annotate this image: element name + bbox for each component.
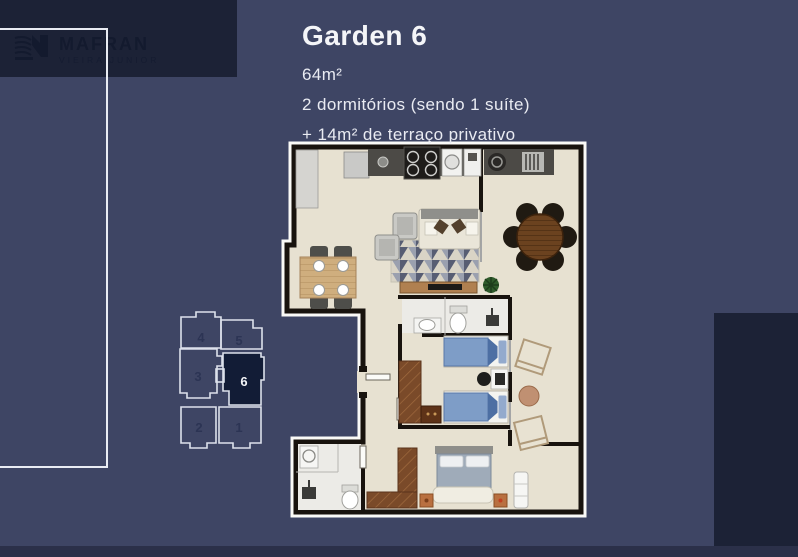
- keyplan-label-5: 5: [235, 333, 242, 348]
- laptop: [495, 373, 505, 385]
- tv: [428, 284, 462, 290]
- decorative-border: [0, 28, 108, 468]
- suite-sink: [300, 446, 318, 468]
- bedrooms-text: 2 dormitórios (sendo 1 suíte): [302, 95, 530, 115]
- jar: [378, 157, 388, 167]
- single-bed-2: [444, 391, 508, 423]
- tall-cabinet: [514, 472, 528, 508]
- page: MAFRAN VIEIRA JUNIOR Garden 6 64m² 2 dor…: [0, 0, 798, 557]
- keyplan-label-2: 2: [195, 420, 202, 435]
- suite-toilet: [342, 485, 358, 509]
- keyplan-label-6: 6: [240, 374, 247, 389]
- wardrobe: [399, 361, 421, 423]
- title-block: Garden 6 64m² 2 dormitórios (sendo 1 suí…: [302, 20, 530, 155]
- double-bed: [433, 446, 493, 503]
- washbasin: [419, 320, 435, 331]
- grill: [488, 153, 506, 171]
- bottom-right-dark-panel: [714, 313, 798, 557]
- bottom-strip: [0, 546, 798, 557]
- bed-bench: [433, 487, 493, 503]
- pouf: [519, 386, 539, 406]
- suite-wardrobe-foot: [367, 492, 417, 508]
- desk-chair: [477, 372, 491, 386]
- area-text: 64m²: [302, 65, 530, 85]
- kitchen-counter: [296, 150, 318, 208]
- suite-bathroom-door: [360, 446, 366, 468]
- keyplan-label-3: 3: [194, 369, 201, 384]
- keyplan: 4 5 3 6 2 1: [170, 300, 274, 458]
- single-bed-1: [444, 336, 508, 367]
- plant: [483, 277, 499, 293]
- keyplan-label-4: 4: [197, 330, 205, 345]
- toilet: [450, 306, 467, 333]
- tv-console: [400, 282, 477, 293]
- fridge: [344, 152, 369, 178]
- keyplan-label-1: 1: [235, 420, 242, 435]
- dresser: [421, 406, 441, 423]
- lounge-chair-2: [514, 416, 548, 450]
- floor-plan: [281, 139, 587, 519]
- terrace-text: + 14m² de terraço privativo: [302, 125, 530, 145]
- page-title: Garden 6: [302, 20, 530, 52]
- vent-grate: [522, 152, 544, 172]
- sofa: [419, 209, 480, 249]
